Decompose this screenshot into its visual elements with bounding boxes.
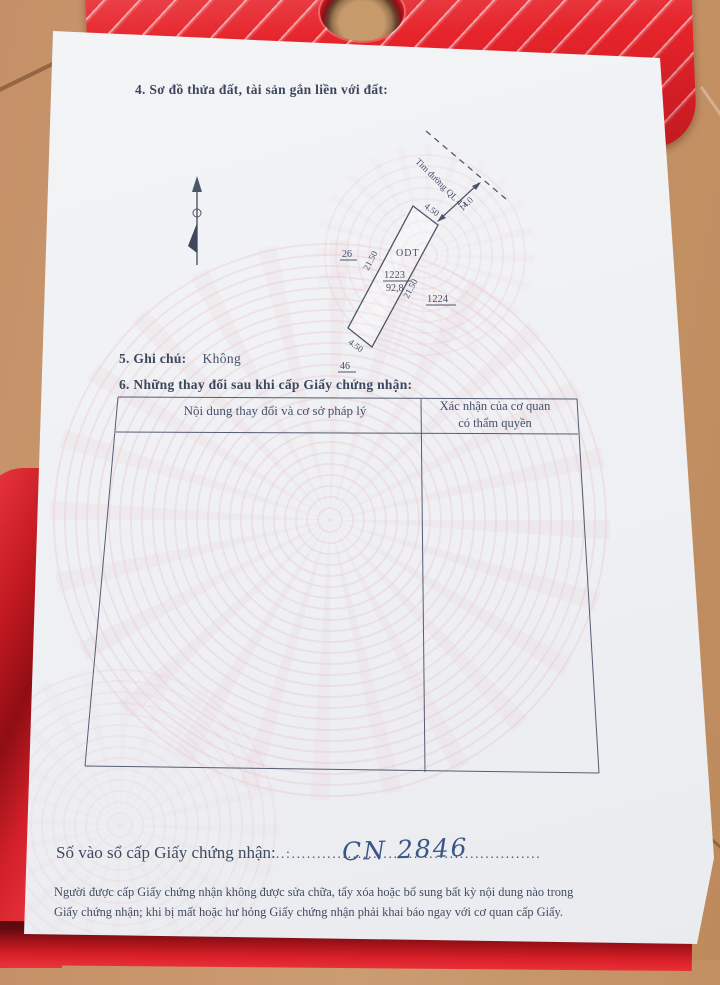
section5-value: Không [202, 351, 241, 366]
floor-scratch-line [700, 86, 720, 153]
notice-line1: Người được cấp Giấy chứng nhận không đượ… [54, 882, 676, 902]
neighbor-bottom-label: 46 [340, 361, 350, 372]
certificate-notice: Người được cấp Giấy chứng nhận không đượ… [54, 882, 676, 922]
section4-heading: 4. Sơ đồ thửa đất, tài sản gắn liền với … [135, 82, 388, 98]
parcel-diagram: 14.0 Tim đường QL 47 4.50 21.50 21.50 4.… [300, 120, 530, 400]
road-name-label: Tim đường QL 47 [414, 156, 468, 210]
registry-number-handwritten: CN 2846 [342, 833, 470, 866]
parcel-area-label: 92,8 [386, 283, 404, 294]
parcel-landuse-label: ODT [396, 248, 420, 259]
photo-scene: { "document": { "section4_heading": "4. … [0, 0, 720, 960]
neighbor-left-label: 26 [342, 249, 352, 260]
table-col2-header-line1: Xác nhận của cơ quan [405, 398, 585, 415]
section5-label: 5. Ghi chú: [119, 351, 186, 366]
dim-left-label: 21.50 [361, 249, 380, 272]
section5-heading: 5. Ghi chú:Không [119, 351, 241, 367]
table-col2-header-line2: có thẩm quyền [405, 415, 585, 432]
road-centerline [426, 131, 506, 199]
table-col1-header: Nội dung thay đổi và cơ sở pháp lý [125, 403, 425, 419]
notice-line2: Giấy chứng nhận; khi bị mất hoặc hư hỏng… [54, 902, 676, 922]
parcel-number-label: 1223 [384, 270, 405, 281]
table-col2-header: Xác nhận của cơ quan có thẩm quyền [405, 398, 585, 432]
neighbor-right-label: 1224 [427, 294, 449, 305]
certificate-page: 4. Sơ đồ thửa đất, tài sản gắn liền với … [20, 25, 718, 950]
changes-table [75, 390, 675, 810]
registry-label: Số vào sổ cấp Giấy chứng nhận: [56, 843, 276, 862]
north-arrow-icon [180, 175, 216, 270]
